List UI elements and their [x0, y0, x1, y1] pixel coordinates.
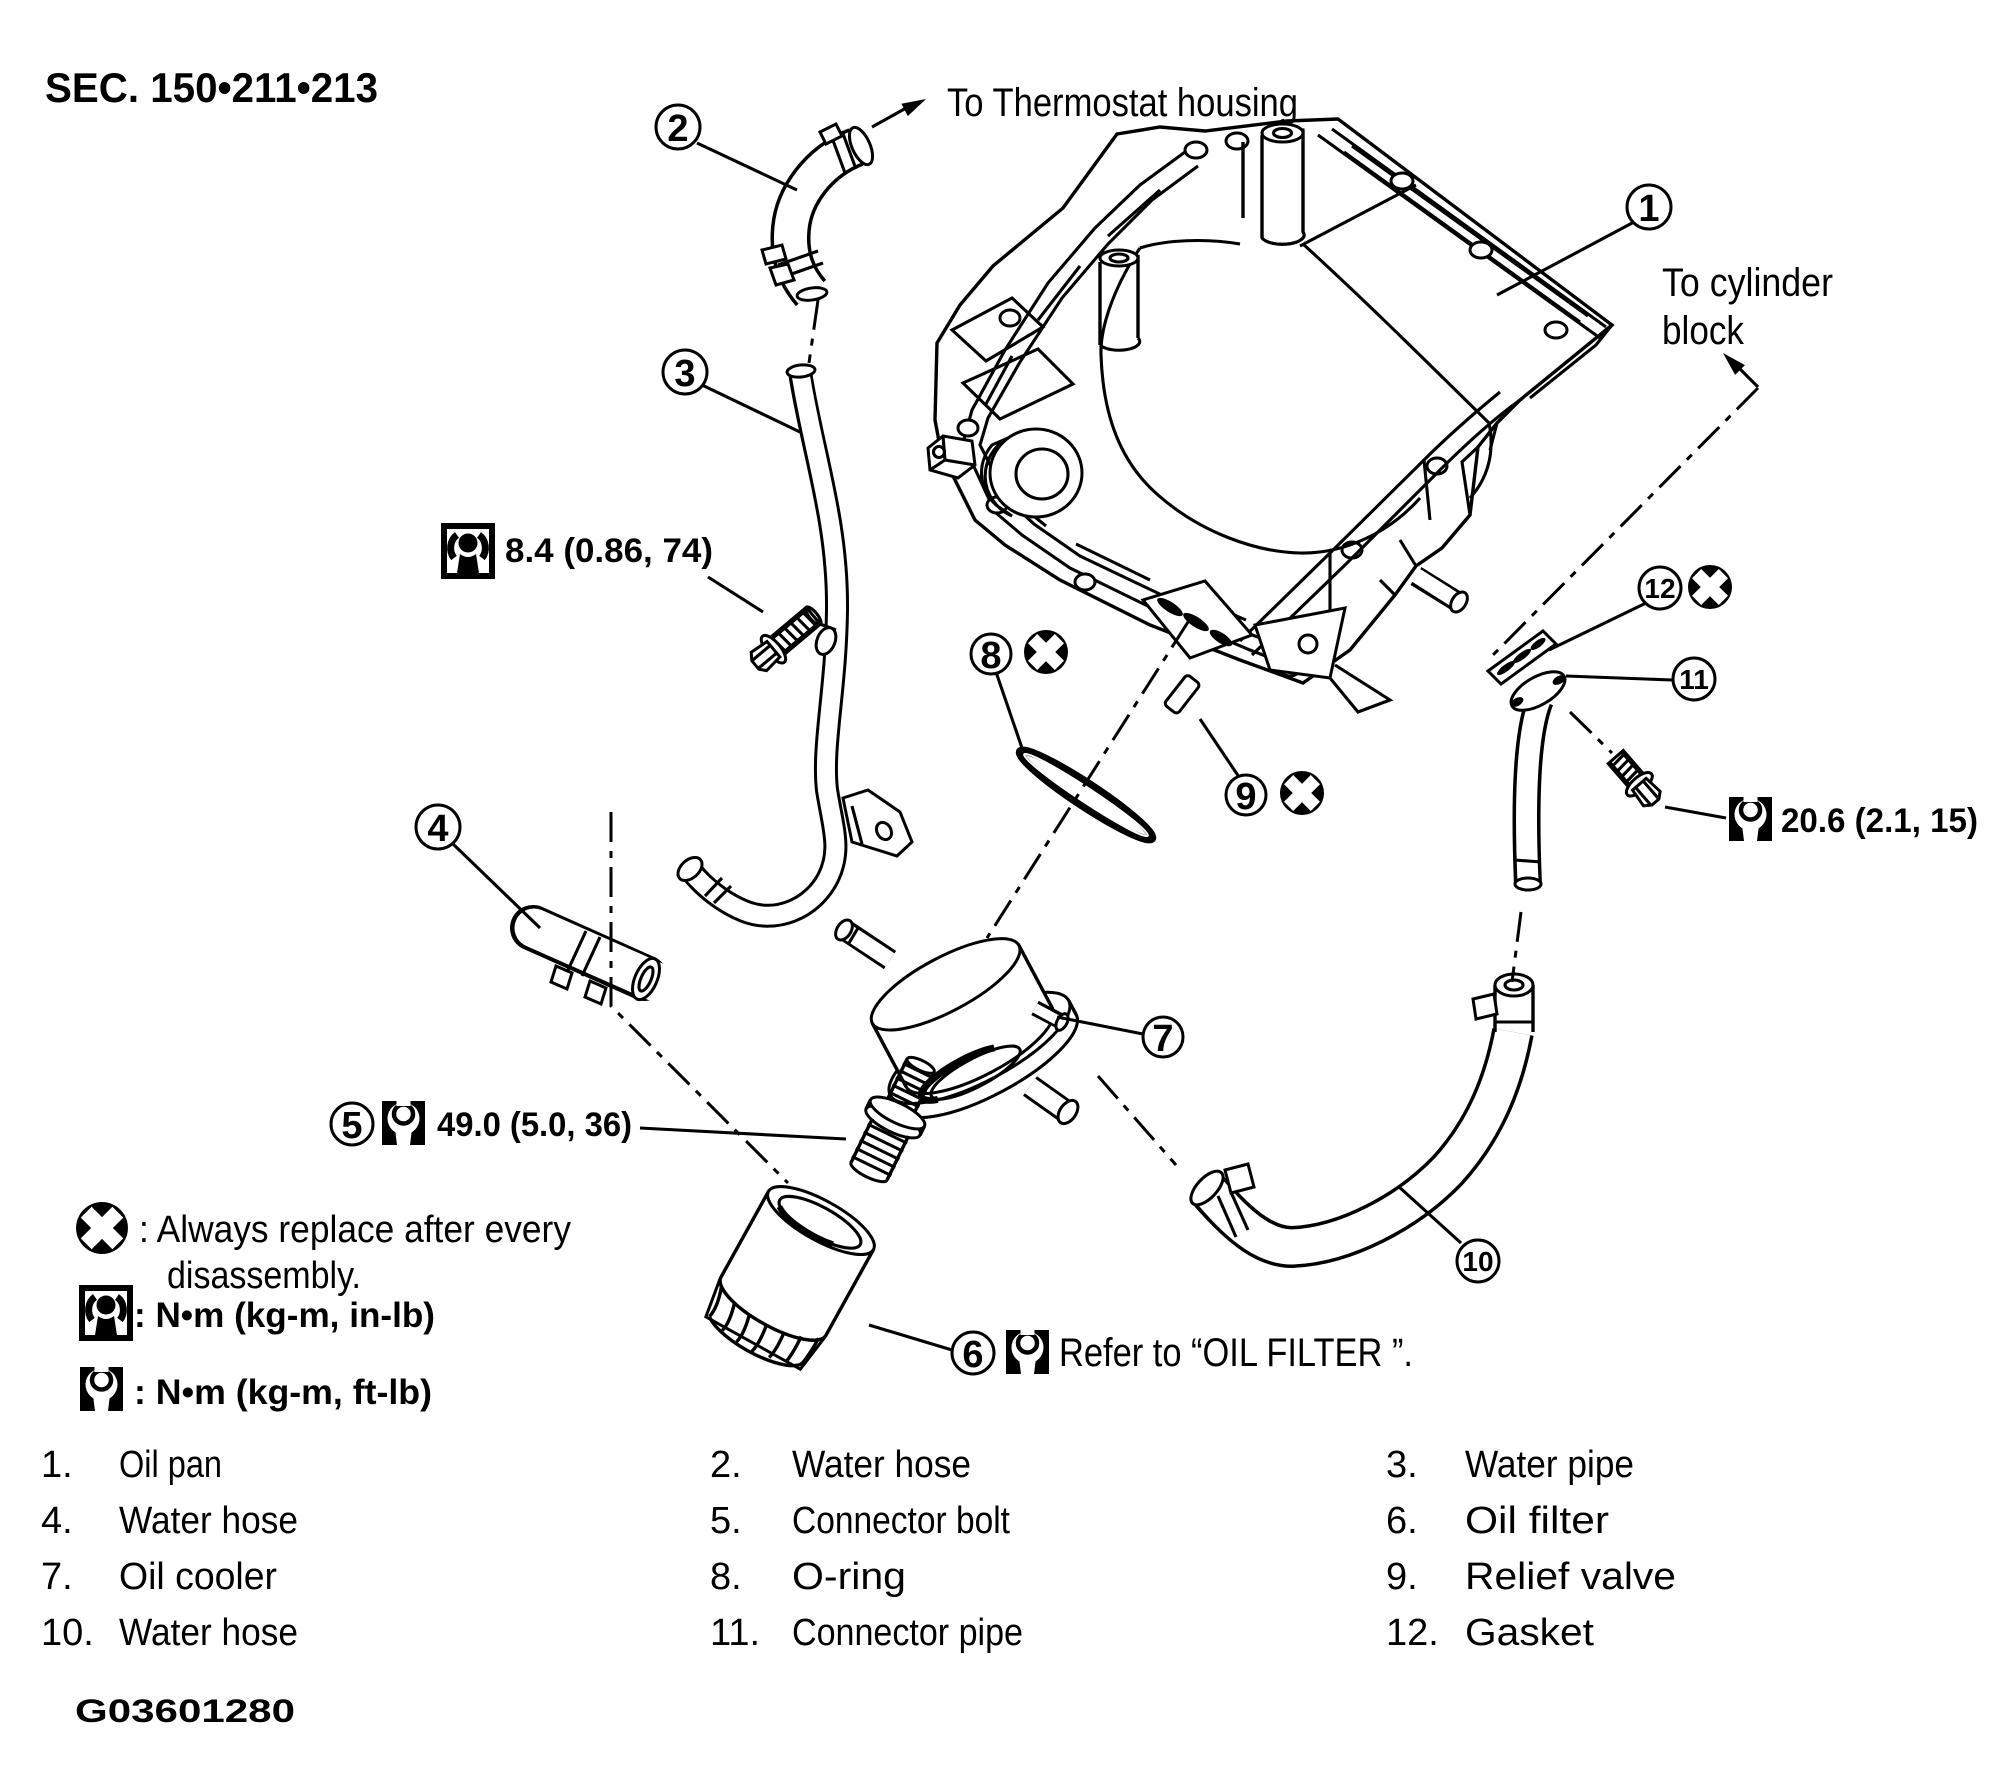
- svg-text:1.: 1.: [41, 1444, 73, 1486]
- svg-text:4: 4: [427, 808, 448, 850]
- svg-text:To Thermostat housing: To Thermostat housing: [947, 81, 1298, 125]
- svg-text:8: 8: [980, 635, 1001, 677]
- svg-text:G03601280: G03601280: [75, 1693, 295, 1729]
- svg-text:SEC. 150•211•213: SEC. 150•211•213: [45, 64, 378, 111]
- svg-text:Oil pan: Oil pan: [119, 1444, 222, 1486]
- svg-text:20.6 (2.1, 15): 20.6 (2.1, 15): [1781, 802, 1978, 840]
- svg-text:Gasket: Gasket: [1465, 1612, 1594, 1654]
- svg-text:9: 9: [1235, 776, 1256, 818]
- svg-text:: N•m (kg-m, ft-lb): : N•m (kg-m, ft-lb): [134, 1373, 432, 1412]
- svg-text:Oil cooler: Oil cooler: [119, 1556, 277, 1598]
- svg-text:7.: 7.: [41, 1556, 73, 1598]
- svg-text:6.: 6.: [1386, 1500, 1418, 1542]
- svg-text:12: 12: [1644, 573, 1675, 604]
- svg-text:O-ring: O-ring: [792, 1556, 906, 1598]
- svg-text:6: 6: [962, 1334, 983, 1376]
- svg-text:9.: 9.: [1386, 1556, 1418, 1598]
- svg-text:Water hose: Water hose: [119, 1500, 298, 1542]
- svg-text:10: 10: [1462, 1246, 1493, 1277]
- svg-text:1: 1: [1638, 188, 1659, 230]
- svg-text:block: block: [1662, 309, 1745, 353]
- svg-text:5: 5: [341, 1105, 362, 1147]
- svg-text:Refer to “OIL FILTER ”.: Refer to “OIL FILTER ”.: [1059, 1331, 1413, 1375]
- svg-text:Relief valve: Relief valve: [1465, 1556, 1676, 1598]
- svg-text:2: 2: [667, 108, 688, 150]
- svg-text:Water pipe: Water pipe: [1465, 1444, 1634, 1486]
- svg-text:11.: 11.: [710, 1612, 760, 1654]
- svg-text:10.: 10.: [41, 1612, 94, 1654]
- svg-text:8.4 (0.86, 74): 8.4 (0.86, 74): [505, 532, 713, 570]
- svg-text:49.0 (5.0, 36): 49.0 (5.0, 36): [437, 1106, 632, 1144]
- svg-text:: Always replace after every: : Always replace after every: [139, 1209, 571, 1251]
- svg-text:5.: 5.: [710, 1500, 742, 1542]
- svg-text:2.: 2.: [710, 1444, 742, 1486]
- svg-text:11: 11: [1679, 664, 1709, 695]
- svg-text:3: 3: [674, 353, 695, 395]
- svg-text:disassembly.: disassembly.: [167, 1255, 361, 1297]
- svg-text:3.: 3.: [1386, 1444, 1418, 1486]
- svg-text:Connector pipe: Connector pipe: [792, 1612, 1023, 1654]
- svg-text:To cylinder: To cylinder: [1662, 261, 1833, 305]
- svg-text:Oil filter: Oil filter: [1465, 1500, 1609, 1542]
- svg-text:12.: 12.: [1386, 1612, 1439, 1654]
- svg-text:: N•m (kg-m, in-lb): : N•m (kg-m, in-lb): [134, 1296, 435, 1335]
- svg-text:Connector bolt: Connector bolt: [792, 1500, 1010, 1542]
- svg-text:8.: 8.: [710, 1556, 742, 1598]
- svg-text:4.: 4.: [41, 1500, 73, 1542]
- svg-text:Water hose: Water hose: [119, 1612, 298, 1654]
- svg-text:Water hose: Water hose: [792, 1444, 971, 1486]
- svg-text:7: 7: [1152, 1018, 1173, 1060]
